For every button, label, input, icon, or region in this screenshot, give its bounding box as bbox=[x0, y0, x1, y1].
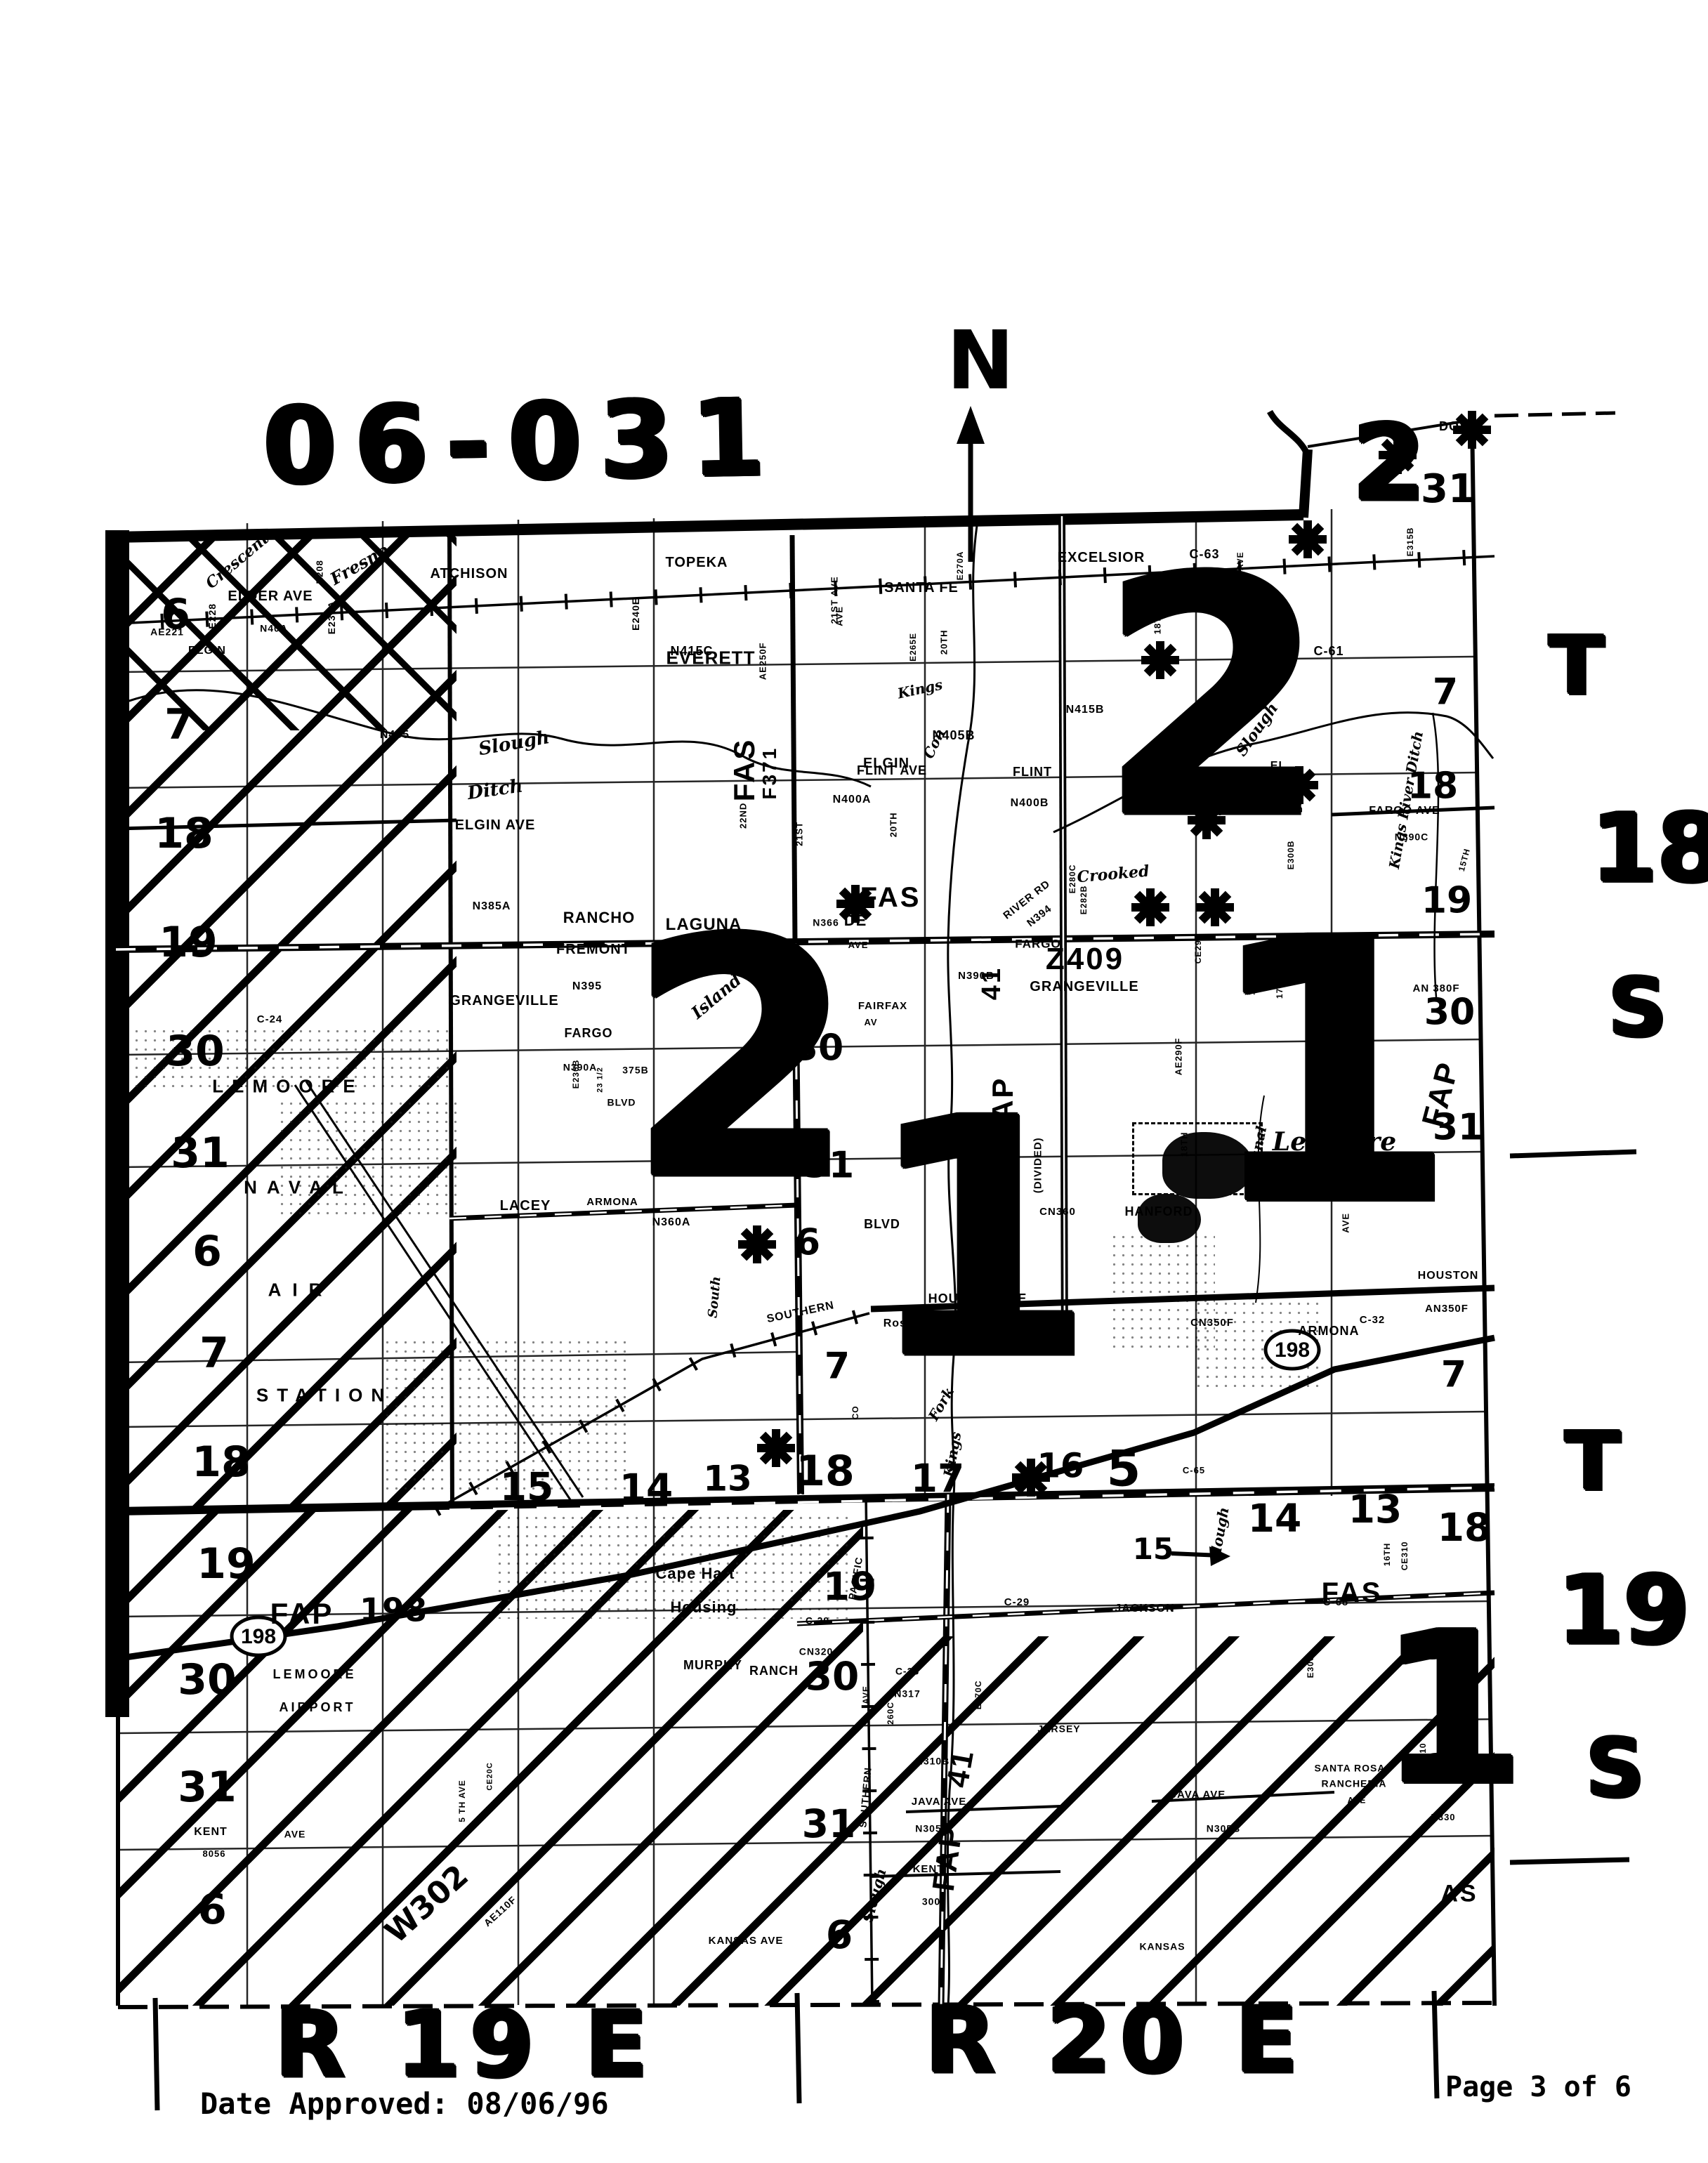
map-label: EL bbox=[1270, 761, 1286, 772]
map-label: 31 bbox=[171, 1132, 230, 1174]
map-label: HANFORD bbox=[1125, 1205, 1193, 1218]
date-approved-line: Date Approved: 08/06/96 bbox=[200, 2089, 609, 2119]
map-label: C-29 bbox=[806, 1615, 829, 1625]
map-label: E228 bbox=[207, 603, 217, 629]
map-label: EXCELSIOR bbox=[1058, 551, 1145, 565]
map-label: N366 bbox=[813, 917, 839, 927]
map-label: 31 bbox=[802, 1805, 856, 1843]
map-label: AE250F bbox=[758, 642, 768, 680]
map-label: FAS bbox=[730, 738, 759, 802]
map-label: ELDER AVE bbox=[228, 589, 313, 603]
map-label: 6 bbox=[192, 1230, 222, 1273]
map-label: 19 bbox=[159, 921, 218, 964]
map-sheet-number: 06-031 bbox=[263, 386, 784, 500]
map-label: E300B bbox=[1287, 841, 1295, 870]
map-label: 18 bbox=[192, 1441, 251, 1483]
map-label: 13 bbox=[703, 1461, 752, 1497]
map-label: C-64 bbox=[773, 1001, 799, 1012]
map-label: SANTA ROSA bbox=[1315, 1763, 1386, 1773]
map-label: 18TH bbox=[1180, 1131, 1189, 1157]
map-label: N40A bbox=[260, 623, 288, 633]
map-label: HOUSTON AVE bbox=[928, 1292, 1027, 1305]
map-label: 5 bbox=[1107, 1445, 1141, 1494]
date-approved-value: 08/06/96 bbox=[466, 2086, 608, 2121]
map-label: MURPHY bbox=[683, 1659, 742, 1671]
map-label: 22ND bbox=[739, 803, 748, 829]
map-label: LACEY bbox=[500, 1199, 551, 1213]
map-label: 260C bbox=[886, 1702, 895, 1725]
map-label: E310 bbox=[1419, 1742, 1427, 1765]
map-label: 15 bbox=[500, 1468, 554, 1506]
map-label: 375B bbox=[622, 1065, 648, 1074]
map-label: 19 bbox=[197, 1543, 256, 1585]
map-label: JAVA AVE bbox=[912, 1796, 967, 1807]
map-label: FAP bbox=[270, 1599, 334, 1629]
map-label: RANCHO bbox=[563, 910, 636, 926]
map-label: FAIRFAX bbox=[674, 943, 726, 954]
map-label: N395 bbox=[572, 981, 602, 992]
map-label: E300 bbox=[1306, 1655, 1315, 1678]
map-label: N360A bbox=[652, 1217, 691, 1228]
map-label: 20TH bbox=[940, 629, 949, 655]
map-label: JERSEY bbox=[1037, 1723, 1080, 1733]
map-label: JAVA AVE bbox=[1171, 1789, 1226, 1800]
map-label: FAS bbox=[860, 883, 921, 912]
map-label: RANCH bbox=[749, 1664, 799, 1677]
map-label: BO12 bbox=[1295, 788, 1303, 813]
map-label: LEMOORE bbox=[272, 1668, 356, 1681]
map-label: KENT bbox=[194, 1827, 228, 1838]
map-label: N305 bbox=[915, 1823, 941, 1833]
map-label: LEMOORE bbox=[212, 1077, 363, 1096]
map-label: 30 bbox=[1424, 994, 1475, 1030]
map-label: AVE bbox=[862, 1685, 870, 1704]
map-label: FLINT AVE bbox=[857, 764, 927, 777]
map-label: 20TH bbox=[889, 812, 898, 837]
map-label: 300 bbox=[922, 1896, 940, 1906]
map-label: LAGUNA bbox=[666, 916, 742, 933]
scanned-map-page: 198198 T18ST19SR 19 ER 20 E2211123167181… bbox=[0, 0, 1708, 2163]
map-label: GRANGEVILLE bbox=[1030, 980, 1138, 994]
map-label: 41 bbox=[978, 966, 1005, 1000]
map-label: ATCHISON bbox=[431, 567, 508, 581]
map-label: 18 bbox=[155, 813, 213, 855]
map-label: AVE FLINT bbox=[1127, 774, 1198, 787]
north-label: N bbox=[947, 321, 1014, 402]
map-label: Z409 bbox=[1046, 944, 1124, 975]
map-label: 7 bbox=[164, 704, 194, 746]
map-label: N317 bbox=[894, 1688, 920, 1698]
map-label: STATION bbox=[256, 1386, 393, 1405]
map-label: 18 bbox=[796, 1450, 855, 1492]
map-label: DOV bbox=[1439, 420, 1469, 433]
map-label: CO bbox=[851, 1405, 860, 1419]
map-label: 198 bbox=[360, 1594, 427, 1626]
map-label: C-61 bbox=[1313, 645, 1344, 657]
map-label: 7 bbox=[825, 1348, 850, 1384]
map-label: R 20 E bbox=[926, 1995, 1308, 2086]
map-label: CE310 bbox=[1400, 1541, 1409, 1571]
map-label: South bbox=[707, 1276, 723, 1319]
map-label: 23 1/2 bbox=[597, 1067, 605, 1093]
map-label: ELGIN bbox=[188, 645, 226, 657]
map-label: R 19 E bbox=[275, 1999, 657, 2091]
map-label: E240E bbox=[631, 598, 640, 631]
map-label: 5 TH AVE bbox=[458, 1780, 466, 1822]
map-label: KENT bbox=[913, 1864, 945, 1874]
map-label: AVE bbox=[1341, 1213, 1351, 1233]
map-label: C-68 bbox=[1323, 1597, 1349, 1608]
map-label: E282B bbox=[1079, 886, 1088, 915]
map-label: 6 bbox=[795, 1224, 820, 1261]
map-label: E280C bbox=[1068, 864, 1077, 894]
map-label: CN360 bbox=[1039, 1207, 1076, 1217]
map-label: 19 bbox=[1558, 1563, 1690, 1658]
map-label: ARMONA bbox=[1299, 1324, 1360, 1337]
map-label: RANCHERIA bbox=[1322, 1778, 1387, 1788]
map-label: HOUSTON bbox=[1418, 1270, 1479, 1282]
map-label: 17TH bbox=[1275, 975, 1284, 999]
map-label: E270C bbox=[974, 1681, 983, 1710]
map-label: FARGO bbox=[564, 1027, 612, 1039]
map-label: Lemoore bbox=[1273, 1129, 1396, 1155]
map-label: FLINT bbox=[1013, 765, 1052, 778]
map-label: FREMONT bbox=[556, 942, 631, 956]
map-label: N305B bbox=[1207, 1823, 1241, 1833]
map-label: 7 bbox=[1441, 1356, 1466, 1393]
map-label: N400B bbox=[1011, 798, 1049, 809]
map-label: 1 bbox=[865, 1076, 1095, 1406]
map-label: KANSAS bbox=[1139, 1941, 1185, 1951]
map-label: NAVAL bbox=[244, 1178, 353, 1197]
map-label: (DIVIDED) bbox=[1033, 1137, 1044, 1193]
map-label: 31 bbox=[803, 1147, 854, 1183]
map-label: 30 bbox=[1421, 1629, 1472, 1665]
map-label: C-32 bbox=[1360, 1315, 1386, 1325]
map-label: 21ST AVE bbox=[830, 576, 839, 624]
map-label: AE221 bbox=[150, 626, 184, 636]
map-label: 2 bbox=[1353, 412, 1426, 517]
map-label: S bbox=[1587, 1729, 1645, 1810]
map-label: E230B bbox=[572, 1060, 580, 1089]
map-label: DE bbox=[844, 913, 867, 928]
map-label: KANSAS AVE bbox=[709, 1935, 784, 1946]
map-label: AVE bbox=[848, 940, 869, 949]
map-label: 16TH bbox=[1383, 1543, 1391, 1566]
map-label: 30 bbox=[806, 1657, 860, 1696]
map-label: CE290 bbox=[1194, 935, 1202, 964]
map-label: E230A bbox=[327, 600, 336, 634]
map-label: GRANGEVILLE bbox=[449, 994, 558, 1008]
map-label: 14 bbox=[619, 1469, 674, 1508]
map-label: FAP bbox=[988, 1077, 1018, 1140]
map-label: SANTA FE bbox=[884, 581, 959, 595]
map-label: AVE bbox=[284, 1829, 306, 1839]
map-label: T bbox=[1549, 626, 1604, 707]
map-label: S bbox=[1609, 968, 1667, 1049]
map-label: 21ST bbox=[795, 822, 804, 846]
page-indicator: Page 3 of 6 bbox=[1445, 2073, 1631, 2101]
map-label: N310B bbox=[916, 1756, 950, 1766]
map-label: C-29 bbox=[1004, 1597, 1030, 1608]
map-label: AN 380F bbox=[1412, 983, 1459, 994]
map-label: ARMONA bbox=[586, 1197, 638, 1207]
map-label: N405 bbox=[380, 730, 409, 741]
map-label: AN350F bbox=[1425, 1303, 1469, 1314]
map-label: 18 bbox=[1591, 801, 1708, 896]
map-label: AVE bbox=[1348, 1796, 1367, 1804]
map-label: CN395 bbox=[772, 972, 808, 982]
map-label: E265E bbox=[909, 633, 917, 662]
map-label: 16 bbox=[1037, 1449, 1084, 1483]
map-label: 8056 bbox=[203, 1849, 226, 1858]
map-label: N330 bbox=[1431, 1813, 1455, 1822]
map-label: 19 bbox=[1421, 882, 1472, 919]
map-label: AE290F bbox=[1174, 1037, 1183, 1075]
map-label: AIRPORT bbox=[280, 1701, 356, 1714]
map-label: 31 bbox=[1421, 470, 1476, 509]
map-label: Cape Hart bbox=[656, 1566, 735, 1582]
map-label: FAIRFAX bbox=[858, 1001, 907, 1011]
map-label: CN320 bbox=[799, 1646, 834, 1656]
map-label: 6 bbox=[826, 1916, 853, 1954]
map-label: 7 bbox=[199, 1332, 229, 1374]
map-label: C-65 bbox=[1183, 1466, 1205, 1475]
map-label: F371 bbox=[760, 747, 780, 800]
map-label: E208 bbox=[315, 560, 324, 584]
map-label: T bbox=[1565, 1422, 1620, 1503]
map-label: 1 bbox=[1204, 891, 1458, 1256]
map-label: BLVD bbox=[607, 1097, 636, 1107]
date-approved-label: Date Approved: bbox=[200, 2086, 449, 2121]
map-label: 31 bbox=[178, 1766, 237, 1808]
map-label: 41 bbox=[942, 1747, 980, 1790]
map-label: 30 bbox=[793, 1030, 843, 1066]
map-label: AS bbox=[1440, 1881, 1478, 1905]
map-label: AV bbox=[864, 1018, 877, 1027]
map-label: 30 bbox=[178, 1659, 237, 1701]
map-label: ELGIN AVE bbox=[455, 818, 536, 832]
map-label: 6 bbox=[197, 1888, 227, 1931]
map-label: JACKSON bbox=[1115, 1603, 1174, 1615]
map-label: Rossi bbox=[883, 1318, 918, 1329]
map-label: AIR bbox=[268, 1281, 334, 1299]
map-label: N400A bbox=[833, 794, 872, 806]
map-label: CN40 bbox=[1193, 807, 1224, 818]
map-label: 18TH bbox=[1153, 609, 1162, 634]
map-label: 14 bbox=[1248, 1499, 1302, 1538]
map-label: TOPEKA bbox=[666, 555, 728, 570]
map-label: 18 bbox=[1438, 1508, 1492, 1547]
map-label: 30 bbox=[166, 1030, 225, 1072]
map-label: BLVD bbox=[864, 1218, 900, 1230]
map-label: C-24 bbox=[257, 1014, 283, 1025]
map-label: C-28 bbox=[895, 1666, 919, 1676]
map-label: N415B bbox=[1066, 704, 1105, 716]
highway-shield-number: 198 bbox=[1275, 1339, 1310, 1362]
map-label: E270A bbox=[956, 551, 964, 581]
map-label: Housing bbox=[671, 1600, 737, 1615]
map-label: 31 bbox=[1426, 1749, 1476, 1786]
map-label: 16TH bbox=[1247, 970, 1256, 995]
map-label: C-63 bbox=[1189, 548, 1219, 560]
map-label: 13 bbox=[1348, 1490, 1402, 1529]
map-label: N385A bbox=[473, 901, 511, 912]
map-label: CN350F bbox=[1190, 1317, 1234, 1328]
map-label: E315B bbox=[1406, 527, 1414, 557]
north-arrow bbox=[957, 406, 985, 562]
map-label: CE20C bbox=[487, 1762, 494, 1790]
map-label: N415C bbox=[670, 645, 713, 657]
map-label: 17TH AVE bbox=[1236, 551, 1244, 596]
map-label: 7 bbox=[1433, 673, 1458, 710]
map-label: 15 bbox=[1133, 1534, 1174, 1564]
